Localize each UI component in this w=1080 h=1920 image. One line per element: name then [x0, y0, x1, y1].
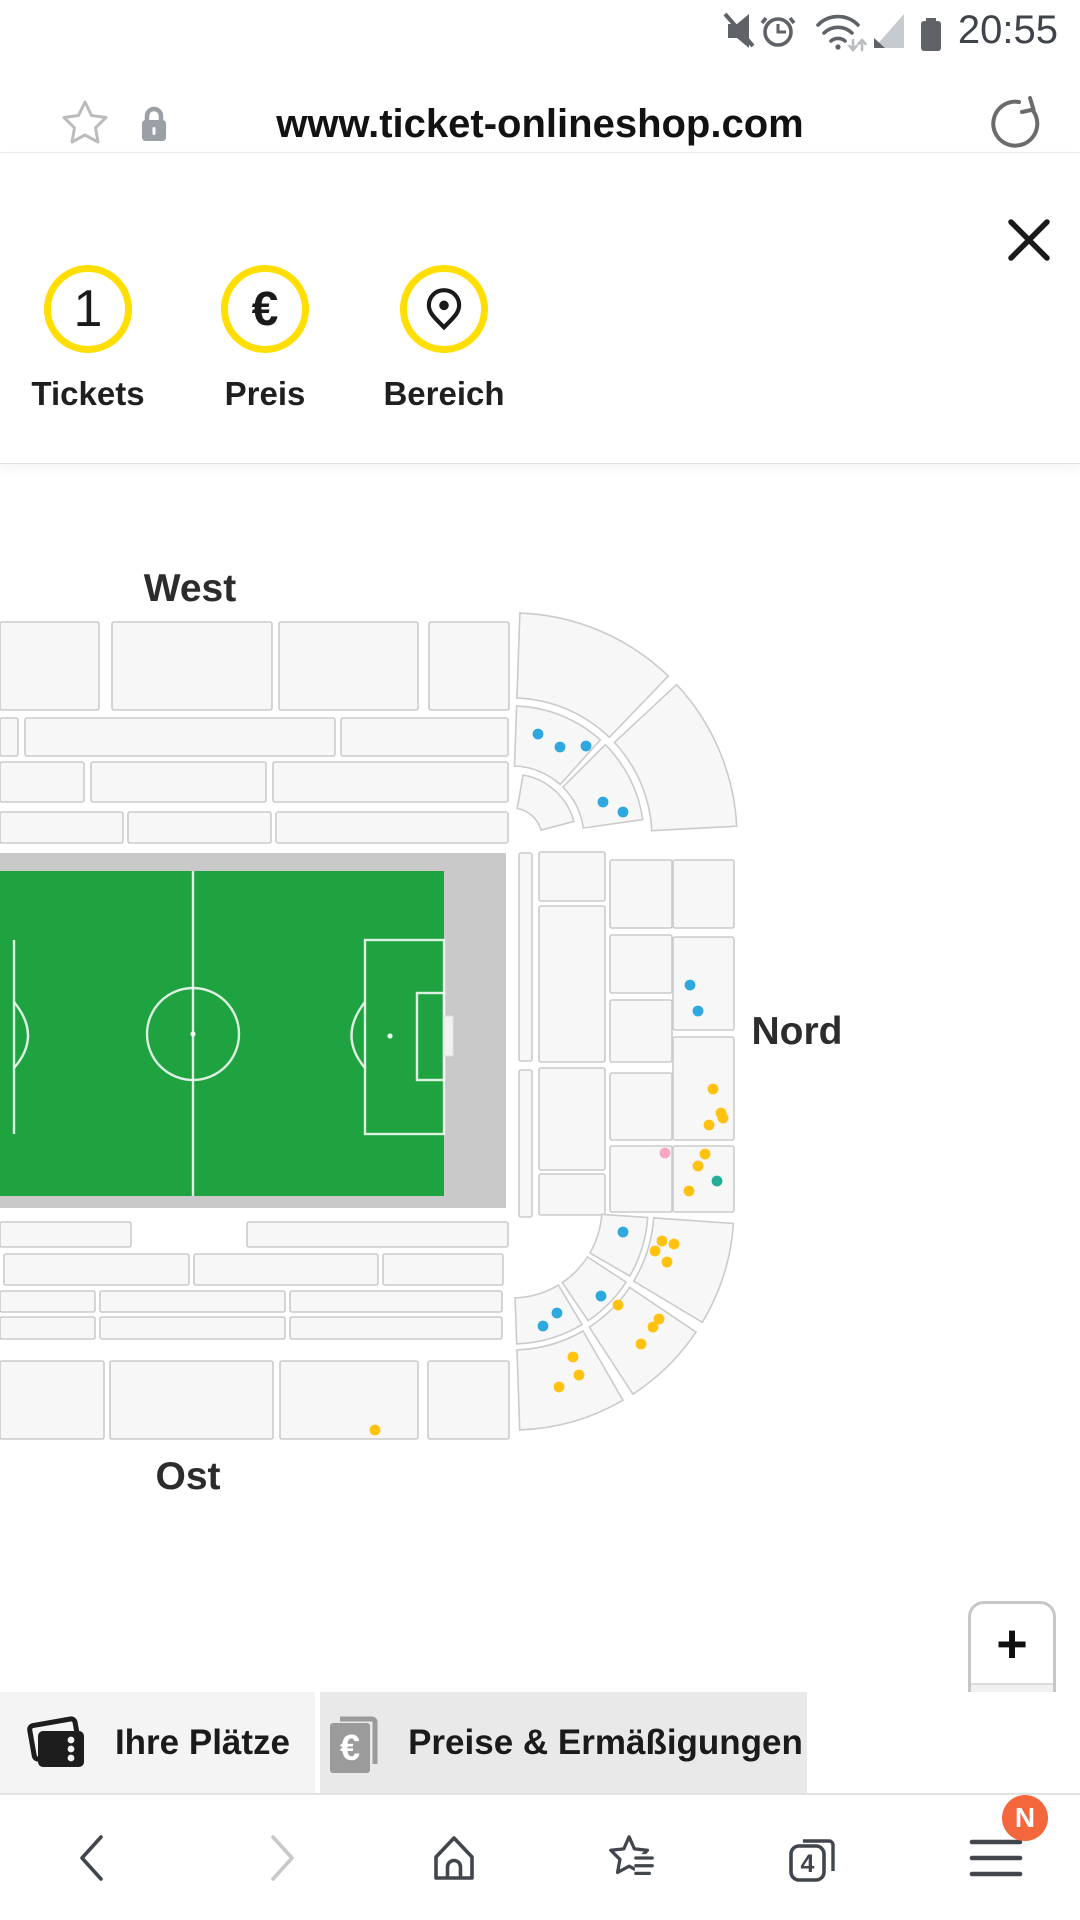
- seat-dot-yellow[interactable]: [370, 1425, 381, 1436]
- stand-block[interactable]: [0, 1222, 131, 1247]
- map-label-west: West: [144, 567, 236, 611]
- seat-dot-yellow[interactable]: [636, 1339, 647, 1350]
- seat-dot-yellow[interactable]: [662, 1257, 673, 1268]
- wifi-icon: [818, 17, 866, 50]
- step-tickets-label: Tickets: [31, 375, 144, 413]
- seat-dot-yellow[interactable]: [700, 1149, 711, 1160]
- seat-dot-blue[interactable]: [618, 1227, 629, 1238]
- seat-dot-blue[interactable]: [596, 1291, 607, 1302]
- seat-dot-blue[interactable]: [598, 797, 609, 808]
- tabs-icon[interactable]: 4: [786, 1832, 838, 1884]
- menu-notification-badge: N: [1002, 1795, 1048, 1841]
- step-preis-circle: €: [221, 265, 309, 353]
- stand-block[interactable]: [276, 812, 508, 843]
- stand-block[interactable]: [0, 1317, 95, 1339]
- map-label-ost: Ost: [155, 1455, 220, 1499]
- stand-block[interactable]: [247, 1222, 508, 1247]
- stand-block[interactable]: [0, 718, 18, 756]
- stand-block[interactable]: [428, 1361, 509, 1439]
- stand-corner-sector[interactable]: [517, 775, 574, 830]
- seat-dot-yellow[interactable]: [648, 1322, 659, 1333]
- bottom-tab-bar: Ihre Plätze € Preise & Ermäßigungen: [0, 1692, 1080, 1795]
- seat-dot-blue[interactable]: [618, 807, 629, 818]
- pitch-penalty-spot-right: [387, 1033, 392, 1038]
- bookmark-star-icon[interactable]: [60, 98, 110, 148]
- step-preis: € Preis: [190, 265, 340, 413]
- home-icon[interactable]: [428, 1832, 480, 1884]
- euro-booklet-icon: €: [324, 1709, 382, 1777]
- status-time: 20:55: [958, 8, 1058, 53]
- stand-block[interactable]: [0, 812, 123, 843]
- seat-dot-yellow[interactable]: [708, 1084, 719, 1095]
- stand-block[interactable]: [0, 622, 99, 710]
- euro-symbol: €: [252, 282, 279, 337]
- stand-block[interactable]: [112, 622, 272, 710]
- stand-block[interactable]: [110, 1361, 273, 1439]
- stand-block[interactable]: [673, 937, 734, 1030]
- stand-block[interactable]: [429, 622, 509, 710]
- signal-icon: [874, 14, 904, 48]
- seat-dot-blue[interactable]: [552, 1308, 563, 1319]
- muted-icon: [725, 14, 753, 48]
- seat-dot-pink[interactable]: [660, 1148, 671, 1159]
- battery-icon: [921, 18, 941, 51]
- tab-preise-ermaessigungen[interactable]: € Preise & Ermäßigungen: [320, 1692, 807, 1793]
- seat-dot-yellow[interactable]: [684, 1186, 695, 1197]
- stand-block[interactable]: [0, 1361, 104, 1439]
- ticket-count: 1: [74, 279, 103, 339]
- step-bereich: Bereich: [369, 265, 519, 413]
- stand-block[interactable]: [539, 906, 605, 1062]
- pitch-center-spot: [190, 1031, 195, 1036]
- seat-dot-blue[interactable]: [581, 741, 592, 752]
- stand-block[interactable]: [0, 762, 84, 802]
- stand-block[interactable]: [610, 935, 672, 993]
- stand-block[interactable]: [673, 860, 734, 928]
- stand-block[interactable]: [539, 1174, 605, 1215]
- stand-block[interactable]: [194, 1254, 378, 1285]
- stand-block[interactable]: [280, 1361, 418, 1439]
- seat-dot-yellow[interactable]: [613, 1300, 624, 1311]
- status-bar: 20:55: [0, 0, 1080, 60]
- stand-block[interactable]: [279, 622, 418, 710]
- seat-dot-yellow[interactable]: [693, 1161, 704, 1172]
- stand-block[interactable]: [610, 1073, 672, 1140]
- stand-block[interactable]: [100, 1291, 285, 1312]
- seat-dot-yellow[interactable]: [568, 1352, 579, 1363]
- tab-preise-label: Preise & Ermäßigungen: [408, 1723, 803, 1763]
- forward-icon[interactable]: [254, 1832, 306, 1884]
- seat-dot-blue[interactable]: [685, 980, 696, 991]
- step-bereich-label: Bereich: [383, 375, 504, 413]
- secure-lock-icon: [138, 104, 170, 144]
- stand-block[interactable]: [290, 1317, 502, 1339]
- url-text[interactable]: www.ticket-onlineshop.com: [276, 102, 803, 147]
- stand-block[interactable]: [341, 718, 508, 756]
- stand-block[interactable]: [128, 812, 271, 843]
- stand-block[interactable]: [25, 718, 335, 756]
- seat-dot-blue[interactable]: [538, 1321, 549, 1332]
- location-pin-icon: [421, 285, 467, 333]
- seat-dot-yellow[interactable]: [718, 1113, 729, 1124]
- seat-dot-blue[interactable]: [693, 1006, 704, 1017]
- address-bar: www.ticket-onlineshop.com: [0, 60, 1080, 153]
- checkout-steps-panel: 1 Tickets € Preis Bereich: [0, 153, 1080, 464]
- seat-dot-yellow[interactable]: [657, 1236, 668, 1247]
- stand-block[interactable]: [91, 762, 266, 802]
- alarm-icon: [762, 18, 794, 45]
- seat-dot-blue[interactable]: [555, 742, 566, 753]
- seat-dot-yellow[interactable]: [704, 1120, 715, 1131]
- tab-ihre-plaetze[interactable]: Ihre Plätze: [0, 1692, 315, 1793]
- tab-ihre-plaetze-label: Ihre Plätze: [115, 1723, 290, 1763]
- bookmarks-icon[interactable]: [606, 1832, 658, 1884]
- euro-booklet-symbol: €: [340, 1727, 360, 1768]
- step-bereich-circle: [400, 265, 488, 353]
- stand-block[interactable]: [273, 762, 508, 802]
- back-icon[interactable]: [68, 1832, 120, 1884]
- stand-block[interactable]: [539, 852, 605, 901]
- browser-screen: West Nord Ost: [0, 0, 1080, 1920]
- close-icon[interactable]: [1004, 215, 1054, 265]
- stand-block[interactable]: [519, 853, 532, 1061]
- reload-icon[interactable]: [986, 96, 1040, 150]
- stand-block[interactable]: [673, 1037, 734, 1140]
- step-tickets: 1 Tickets: [13, 265, 163, 413]
- seat-dot-yellow[interactable]: [574, 1370, 585, 1381]
- seat-dot-yellow[interactable]: [669, 1239, 680, 1250]
- seat-dot-blue[interactable]: [533, 729, 544, 740]
- stand-block[interactable]: [539, 1068, 605, 1170]
- goal-right: [444, 1016, 453, 1056]
- stand-block[interactable]: [519, 1070, 532, 1217]
- stand-block[interactable]: [290, 1291, 502, 1312]
- stand-block[interactable]: [4, 1254, 189, 1285]
- zoom-in-button[interactable]: +: [971, 1604, 1053, 1683]
- step-tickets-circle: 1: [44, 265, 132, 353]
- browser-nav-bar: 4 N: [0, 1795, 1080, 1920]
- map-label-nord: Nord: [752, 1010, 843, 1054]
- stand-block[interactable]: [100, 1317, 285, 1339]
- tab-count: 4: [801, 1850, 815, 1878]
- stand-block[interactable]: [383, 1254, 503, 1285]
- stand-block[interactable]: [610, 860, 672, 928]
- pitch: [0, 871, 444, 1196]
- step-preis-label: Preis: [225, 375, 306, 413]
- seat-dot-teal[interactable]: [712, 1176, 723, 1187]
- seat-dot-yellow[interactable]: [554, 1382, 565, 1393]
- seat-dot-yellow[interactable]: [650, 1246, 661, 1257]
- tickets-icon: [25, 1715, 89, 1771]
- stand-block[interactable]: [0, 1291, 95, 1312]
- stand-block[interactable]: [610, 1000, 672, 1062]
